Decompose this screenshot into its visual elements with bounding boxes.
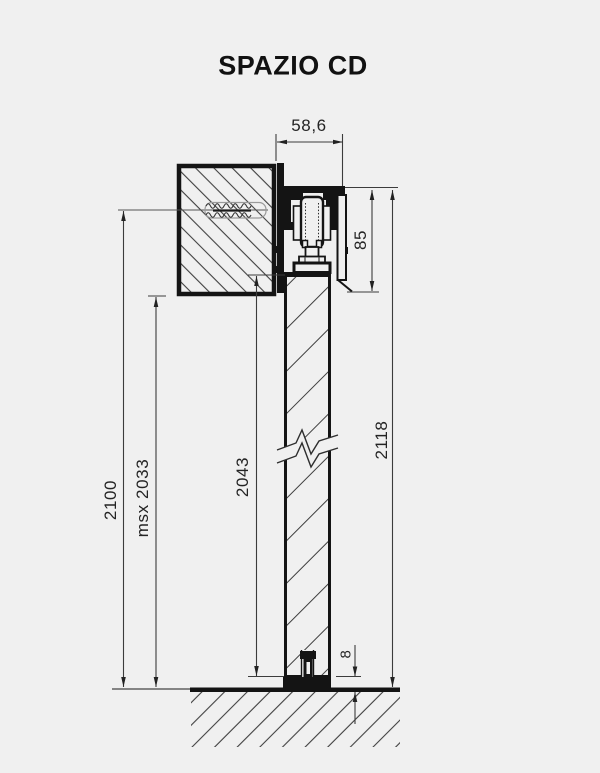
dim-label-track-width: 58,6 (291, 116, 327, 136)
dim-label-floor-gap: 8 (338, 650, 355, 659)
technical-drawing-canvas: SPAZIO CD 58,6 85 2118 2043 msx 2033 210… (0, 0, 600, 773)
floor-line (112, 688, 400, 748)
dim-label-max-clearance: msx 2033 (133, 459, 153, 538)
ground-hatch (191, 692, 400, 747)
dim-label-system-height: 2118 (372, 421, 392, 460)
door-panel (284, 272, 331, 677)
dim-label-track-height: 85 (351, 230, 371, 250)
dim-label-door-height: 2043 (233, 457, 253, 497)
drawing-title: SPAZIO CD (218, 51, 368, 82)
dim-label-fixing-height: 2100 (101, 480, 121, 520)
roller-carriage (294, 197, 331, 273)
